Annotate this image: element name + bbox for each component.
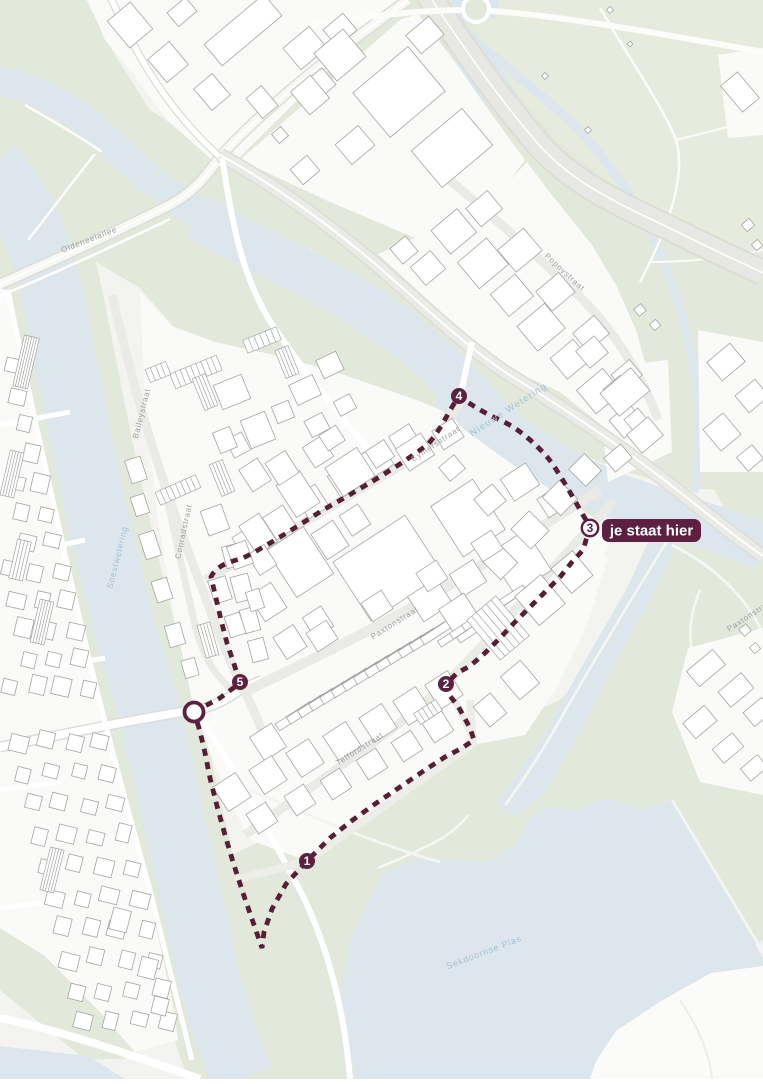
- svg-text:je staat hier: je staat hier: [609, 523, 694, 540]
- svg-text:5: 5: [237, 675, 244, 689]
- svg-text:3: 3: [587, 521, 594, 535]
- svg-text:2: 2: [443, 677, 450, 691]
- svg-text:4: 4: [456, 389, 463, 403]
- svg-text:1: 1: [304, 854, 311, 868]
